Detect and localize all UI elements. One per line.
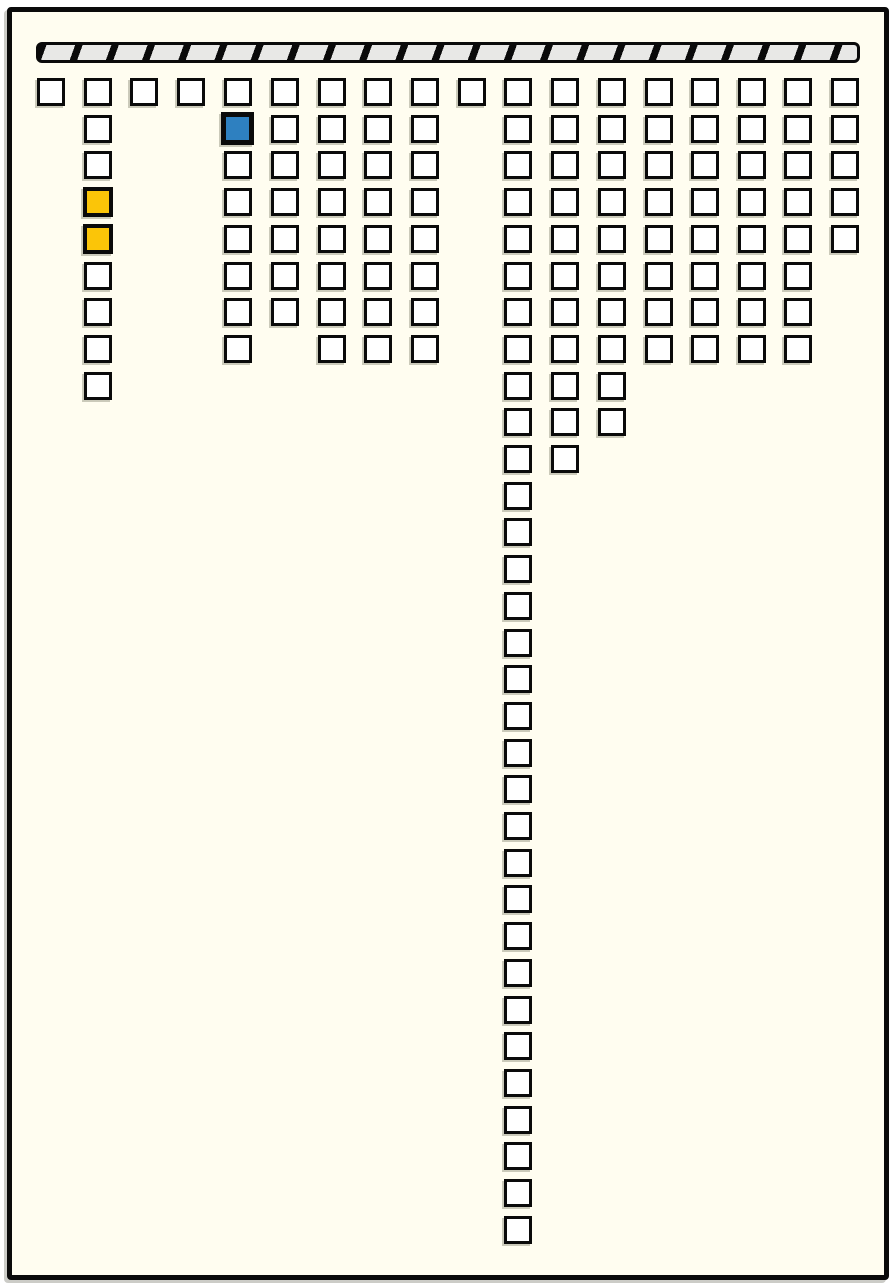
grid-cell-c10-r12[interactable]	[504, 518, 532, 546]
grid-cell-c11-r7[interactable]	[551, 335, 579, 363]
grid-cell-c4-r5[interactable]	[224, 262, 252, 290]
grid-cell-c8-r5[interactable]	[411, 262, 439, 290]
grid-cell-c14-r2[interactable]	[691, 151, 719, 179]
grid-cell-c1-r5[interactable]	[84, 262, 112, 290]
grid-cell-c8-r1[interactable]	[411, 115, 439, 143]
grid-cell-c6-r0[interactable]	[318, 78, 346, 106]
grid-cell-c10-r22[interactable]	[504, 885, 532, 913]
grid-cell-c16-r0[interactable]	[784, 78, 812, 106]
grid-cell-c10-r7[interactable]	[504, 335, 532, 363]
grid-cell-c7-r6[interactable]	[364, 298, 392, 326]
grid-cell-c10-r14[interactable]	[504, 592, 532, 620]
grid-cell-c13-r4[interactable]	[645, 225, 673, 253]
grid-cell-c12-r5[interactable]	[598, 262, 626, 290]
grid-cell-c12-r4[interactable]	[598, 225, 626, 253]
grid-cell-c16-r6[interactable]	[784, 298, 812, 326]
grid-cell-c14-r7[interactable]	[691, 335, 719, 363]
grid-cell-c8-r2[interactable]	[411, 151, 439, 179]
grid-cell-c7-r1[interactable]	[364, 115, 392, 143]
grid-cell-c16-r5[interactable]	[784, 262, 812, 290]
grid-cell-c1-r8[interactable]	[84, 372, 112, 400]
grid-cell-c5-r1[interactable]	[271, 115, 299, 143]
grid-cell-c15-r5[interactable]	[738, 262, 766, 290]
grid-cell-c15-r1[interactable]	[738, 115, 766, 143]
grid-cell-c12-r7[interactable]	[598, 335, 626, 363]
grid-cell-c8-r7[interactable]	[411, 335, 439, 363]
grid-cell-c4-r3[interactable]	[224, 188, 252, 216]
grid-cell-c14-r0[interactable]	[691, 78, 719, 106]
grid-cell-c16-r3[interactable]	[784, 188, 812, 216]
grid-cell-c4-r7[interactable]	[224, 335, 252, 363]
grid-cell-c11-r4[interactable]	[551, 225, 579, 253]
grid-cell-c8-r3[interactable]	[411, 188, 439, 216]
grid-cell-c10-r26[interactable]	[504, 1032, 532, 1060]
grid-cell-c11-r9[interactable]	[551, 408, 579, 436]
grid-cell-c13-r6[interactable]	[645, 298, 673, 326]
grid-cell-c7-r0[interactable]	[364, 78, 392, 106]
grid-cell-c17-r3[interactable]	[831, 188, 859, 216]
grid-cell-c10-r17[interactable]	[504, 702, 532, 730]
grid-cell-c8-r4[interactable]	[411, 225, 439, 253]
grid-cell-c7-r3[interactable]	[364, 188, 392, 216]
grid-cell-c6-r2[interactable]	[318, 151, 346, 179]
grid-cell-c1-r6[interactable]	[84, 298, 112, 326]
grid-cell-c14-r1[interactable]	[691, 115, 719, 143]
grid-cell-c10-r5[interactable]	[504, 262, 532, 290]
grid-cell-c10-r21[interactable]	[504, 849, 532, 877]
grid-cell-c17-r2[interactable]	[831, 151, 859, 179]
grid-cell-c12-r6[interactable]	[598, 298, 626, 326]
grid-cell-c10-r0[interactable]	[504, 78, 532, 106]
grid-cell-c5-r5[interactable]	[271, 262, 299, 290]
grid-cell-c16-r1[interactable]	[784, 115, 812, 143]
grid-cell-c1-r7[interactable]	[84, 335, 112, 363]
grid-cell-c10-r30[interactable]	[504, 1179, 532, 1207]
selected-cell-blue[interactable]	[221, 112, 254, 145]
grid-cell-c8-r0[interactable]	[411, 78, 439, 106]
grid-cell-c11-r5[interactable]	[551, 262, 579, 290]
grid-cell-c6-r7[interactable]	[318, 335, 346, 363]
grid-cell-c1-r1[interactable]	[84, 115, 112, 143]
grid-cell-c12-r2[interactable]	[598, 151, 626, 179]
grid-cell-c5-r3[interactable]	[271, 188, 299, 216]
highlighted-cell-yellow-2[interactable]	[83, 224, 113, 254]
grid-cell-c6-r4[interactable]	[318, 225, 346, 253]
grid-cell-c17-r1[interactable]	[831, 115, 859, 143]
grid-cell-c10-r23[interactable]	[504, 922, 532, 950]
hatched-bar[interactable]	[36, 42, 860, 63]
grid-cell-c17-r4[interactable]	[831, 225, 859, 253]
grid-cell-c10-r10[interactable]	[504, 445, 532, 473]
grid-cell-c10-r31[interactable]	[504, 1216, 532, 1244]
grid-cell-c7-r2[interactable]	[364, 151, 392, 179]
grid-cell-c11-r2[interactable]	[551, 151, 579, 179]
grid-cell-c15-r0[interactable]	[738, 78, 766, 106]
grid-cell-c14-r5[interactable]	[691, 262, 719, 290]
grid-cell-c4-r6[interactable]	[224, 298, 252, 326]
grid-cell-c6-r3[interactable]	[318, 188, 346, 216]
grid-cell-c10-r8[interactable]	[504, 372, 532, 400]
diagram-page	[0, 0, 896, 1287]
grid-cell-c5-r4[interactable]	[271, 225, 299, 253]
grid-cell-c10-r20[interactable]	[504, 812, 532, 840]
grid-cell-c15-r7[interactable]	[738, 335, 766, 363]
grid-cell-c1-r0[interactable]	[84, 78, 112, 106]
grid-cell-c10-r15[interactable]	[504, 629, 532, 657]
grid-cell-c11-r1[interactable]	[551, 115, 579, 143]
grid-cell-c11-r10[interactable]	[551, 445, 579, 473]
grid-cell-c10-r19[interactable]	[504, 775, 532, 803]
grid-cell-c10-r9[interactable]	[504, 408, 532, 436]
grid-cell-c11-r6[interactable]	[551, 298, 579, 326]
grid-cell-c4-r2[interactable]	[224, 151, 252, 179]
grid-cell-c6-r1[interactable]	[318, 115, 346, 143]
grid-cell-c7-r7[interactable]	[364, 335, 392, 363]
grid-cell-c15-r6[interactable]	[738, 298, 766, 326]
grid-cell-c1-r2[interactable]	[84, 151, 112, 179]
grid-cell-c12-r1[interactable]	[598, 115, 626, 143]
grid-cell-c10-r28[interactable]	[504, 1106, 532, 1134]
grid-cell-c14-r6[interactable]	[691, 298, 719, 326]
grid-cell-c13-r2[interactable]	[645, 151, 673, 179]
grid-cell-c16-r7[interactable]	[784, 335, 812, 363]
grid-cell-c10-r13[interactable]	[504, 555, 532, 583]
grid-cell-c12-r8[interactable]	[598, 372, 626, 400]
grid-cell-c7-r4[interactable]	[364, 225, 392, 253]
grid-cell-c4-r0[interactable]	[224, 78, 252, 106]
grid-cell-c14-r3[interactable]	[691, 188, 719, 216]
grid-cell-c10-r27[interactable]	[504, 1069, 532, 1097]
grid-cell-c9-r0[interactable]	[458, 78, 486, 106]
grid-cell-c11-r0[interactable]	[551, 78, 579, 106]
grid-cell-c16-r4[interactable]	[784, 225, 812, 253]
grid-cell-c10-r11[interactable]	[504, 482, 532, 510]
grid-cell-c7-r5[interactable]	[364, 262, 392, 290]
grid-cell-c4-r4[interactable]	[224, 225, 252, 253]
grid-cell-c11-r8[interactable]	[551, 372, 579, 400]
highlighted-cell-yellow-1[interactable]	[83, 187, 113, 217]
grid-cell-c10-r24[interactable]	[504, 959, 532, 987]
grid-cell-c13-r3[interactable]	[645, 188, 673, 216]
grid-cell-c3-r0[interactable]	[177, 78, 205, 106]
grid-cell-c5-r0[interactable]	[271, 78, 299, 106]
grid-cell-c14-r4[interactable]	[691, 225, 719, 253]
grid-cell-c11-r3[interactable]	[551, 188, 579, 216]
grid-cell-c12-r9[interactable]	[598, 408, 626, 436]
grid-cell-c12-r0[interactable]	[598, 78, 626, 106]
grid-cell-c2-r0[interactable]	[130, 78, 158, 106]
grid-cell-c10-r25[interactable]	[504, 996, 532, 1024]
grid-cell-c6-r6[interactable]	[318, 298, 346, 326]
grid-cell-c6-r5[interactable]	[318, 262, 346, 290]
grid-cell-c13-r5[interactable]	[645, 262, 673, 290]
grid-cell-c5-r2[interactable]	[271, 151, 299, 179]
grid-cell-c0-r0[interactable]	[37, 78, 65, 106]
grid-cell-c10-r6[interactable]	[504, 298, 532, 326]
grid-cell-c15-r4[interactable]	[738, 225, 766, 253]
grid-cell-c10-r16[interactable]	[504, 665, 532, 693]
grid-cell-c5-r6[interactable]	[271, 298, 299, 326]
grid-cell-c10-r18[interactable]	[504, 739, 532, 767]
grid-cell-c15-r3[interactable]	[738, 188, 766, 216]
grid-cell-c15-r2[interactable]	[738, 151, 766, 179]
grid-cell-c17-r0[interactable]	[831, 78, 859, 106]
grid-cell-c10-r4[interactable]	[504, 225, 532, 253]
grid-cell-c13-r1[interactable]	[645, 115, 673, 143]
grid-cell-c13-r0[interactable]	[645, 78, 673, 106]
grid-cell-c10-r29[interactable]	[504, 1142, 532, 1170]
grid-cell-c13-r7[interactable]	[645, 335, 673, 363]
grid-cell-c16-r2[interactable]	[784, 151, 812, 179]
grid-cell-c12-r3[interactable]	[598, 188, 626, 216]
grid-cell-c10-r3[interactable]	[504, 188, 532, 216]
grid-cell-c8-r6[interactable]	[411, 298, 439, 326]
grid-cell-c10-r2[interactable]	[504, 151, 532, 179]
grid-cell-c10-r1[interactable]	[504, 115, 532, 143]
